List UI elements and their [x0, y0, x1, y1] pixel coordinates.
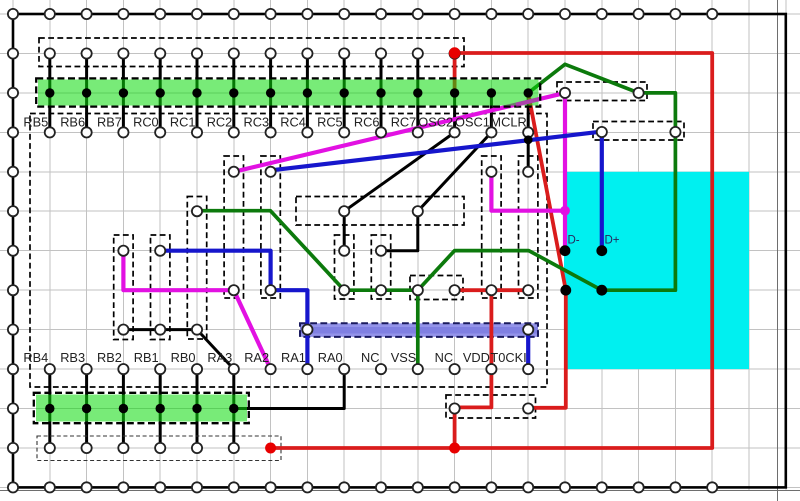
svg-text:RB2: RB2 [97, 350, 122, 365]
svg-text:D+: D+ [605, 235, 620, 247]
svg-text:VSS: VSS [391, 350, 417, 365]
svg-text:NC: NC [361, 350, 379, 365]
svg-text:RC1: RC1 [170, 115, 196, 130]
svg-text:VDD: VDD [463, 350, 490, 365]
svg-text:RB7: RB7 [97, 115, 122, 130]
svg-text:RB5: RB5 [23, 115, 48, 130]
svg-text:MCLR: MCLR [490, 115, 526, 130]
svg-text:RB4: RB4 [23, 350, 48, 365]
svg-text:T0CKI: T0CKI [490, 350, 526, 365]
svg-text:RC5: RC5 [317, 115, 343, 130]
svg-text:OSC2: OSC2 [418, 115, 453, 130]
svg-text:RC0: RC0 [133, 115, 159, 130]
svg-text:RC3: RC3 [243, 115, 269, 130]
svg-text:NC: NC [435, 350, 453, 365]
svg-text:RA1: RA1 [281, 350, 306, 365]
svg-text:RA3: RA3 [207, 350, 232, 365]
svg-text:RC4: RC4 [280, 115, 306, 130]
svg-text:OSC1: OSC1 [455, 115, 490, 130]
svg-text:RB6: RB6 [60, 115, 85, 130]
svg-text:RB0: RB0 [171, 350, 196, 365]
svg-text:RC7: RC7 [391, 115, 417, 130]
svg-text:D-: D- [568, 235, 580, 247]
svg-text:RC6: RC6 [354, 115, 380, 130]
svg-text:RC2: RC2 [207, 115, 233, 130]
svg-text:RB1: RB1 [134, 350, 159, 365]
svg-text:RA0: RA0 [318, 350, 343, 365]
svg-text:RB3: RB3 [60, 350, 85, 365]
svg-text:RA2: RA2 [244, 350, 269, 365]
